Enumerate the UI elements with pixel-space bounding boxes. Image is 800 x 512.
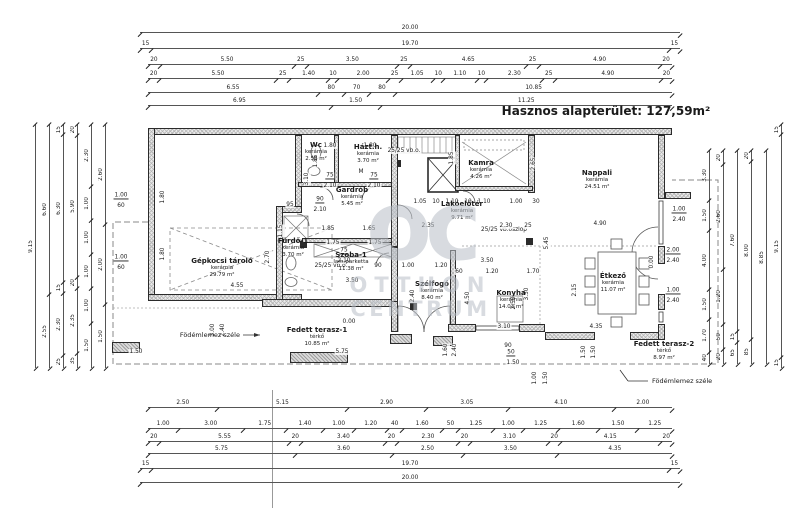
- dim-segment: 9.15: [772, 135, 782, 357]
- room-label-furdo-1: Fürdő-1 kerámia 3.70 m²: [278, 237, 308, 259]
- dim-annotation: 2.00: [666, 247, 681, 254]
- dim-value: 25: [526, 56, 539, 64]
- dim-value: 6.60: [42, 203, 48, 216]
- dim-segment: 25: [277, 70, 289, 79]
- dim-annotation: 60: [454, 269, 463, 275]
- dim-value: 1.60: [402, 420, 443, 428]
- dim-annotation: 1.50: [506, 360, 521, 366]
- dim-value: 2.35: [70, 314, 76, 327]
- dim-value: 4.35: [558, 445, 672, 453]
- dim-segment: 1.50: [331, 97, 381, 106]
- dim-segment: 80: [369, 84, 396, 93]
- dim-segment: 1.50: [700, 290, 710, 320]
- dim-value: 25: [277, 70, 289, 78]
- dim-value: 4.15: [560, 433, 660, 441]
- dim-value: 40: [702, 354, 708, 361]
- wall-segment: [455, 186, 533, 191]
- dim-annotation: 1.75: [326, 240, 341, 246]
- dim-segment: 1.60: [558, 420, 599, 429]
- wall-segment: [658, 294, 665, 310]
- dim-value: 6.95: [148, 97, 331, 105]
- dim-value: 20: [716, 154, 722, 161]
- dim-value: 20.00: [140, 24, 680, 32]
- dim-segment: 2.30: [486, 70, 543, 79]
- dim-value: 20: [661, 70, 672, 78]
- dim-segment: 40: [388, 420, 402, 429]
- dim-segment: 15: [772, 357, 782, 368]
- dim-annotation: 50: [506, 349, 515, 356]
- dim-value: 1.25: [459, 420, 494, 428]
- dim-segment: 20: [289, 433, 301, 442]
- room-label-lakoeloter: Lakóelőtér kerámia 9.71 m²: [441, 200, 483, 222]
- dim-value: 20.00: [140, 474, 680, 482]
- dim-segment: 20: [660, 56, 672, 65]
- dim-segment: 1.00: [493, 420, 523, 429]
- dim-value: 20: [660, 433, 672, 441]
- dim-annotation: 60: [116, 203, 125, 209]
- dim-value: 15: [669, 460, 680, 468]
- dim-chain-vertical: 202.601.205020: [714, 150, 724, 364]
- dim-segment: 1.00: [324, 420, 354, 429]
- dim-annotation: 4.50: [464, 292, 472, 305]
- dim-value: 20: [148, 70, 159, 78]
- dim-segment: 1.25: [459, 420, 494, 429]
- dim-chain-vertical: 205.90202.3535: [68, 124, 78, 368]
- dim-value: 1.60: [558, 420, 599, 428]
- dim-value: 4.00: [702, 254, 708, 267]
- dim-value: 9.15: [28, 240, 34, 253]
- dim-segment: 2.00: [338, 70, 389, 79]
- dim-segment: 15: [669, 460, 680, 469]
- dim-value: 1.20: [354, 420, 388, 428]
- dim-segment: 50: [442, 420, 458, 429]
- dim-value: 3.10: [470, 433, 548, 441]
- dim-value: 3.30: [702, 169, 708, 182]
- dim-annotation: 1.05: [413, 199, 428, 205]
- dim-value: 25: [397, 56, 410, 64]
- dim-annotation: 75: [369, 172, 378, 179]
- slab-edge-label-left: Födémlemez széle: [128, 331, 240, 339]
- wall-segment: [519, 324, 545, 332]
- dim-annotation: 1.85: [448, 152, 456, 165]
- dim-segment: 3.10: [470, 433, 548, 442]
- dim-annotation: 1.20: [434, 263, 449, 269]
- dim-segment: 25: [294, 56, 307, 65]
- dim-value: 3.40: [301, 433, 386, 441]
- wall-segment: [148, 128, 672, 135]
- wall-segment: [391, 247, 398, 307]
- dim-annotation: 3.50: [345, 278, 360, 284]
- dim-value: 35: [70, 357, 76, 364]
- wall-segment: [658, 324, 665, 340]
- dim-value: 25: [543, 70, 555, 78]
- dim-annotation: 0.00: [648, 256, 656, 269]
- dim-annotation: 1.50: [542, 372, 550, 385]
- floor-plan-sheet: Gépkocsi tároló kerámia 29.79 m² Wc kerá…: [0, 0, 800, 512]
- dim-segment: 5.90: [68, 136, 78, 277]
- dim-annotation: 3.10: [497, 324, 512, 330]
- dim-value: 1.50: [702, 298, 708, 311]
- dim-value: 10.85: [395, 84, 672, 92]
- dim-segment: 5.75: [148, 445, 295, 454]
- dim-annotation: 1.00: [401, 263, 416, 269]
- dim-segment: 1.50: [82, 323, 92, 368]
- wall-segment: [450, 250, 456, 332]
- dim-value: 3.50: [463, 445, 558, 453]
- dim-value: 25: [294, 56, 307, 64]
- dim-segment: 20: [548, 433, 560, 442]
- dim-value: 15: [774, 359, 780, 366]
- dim-segment: 1.25: [637, 420, 672, 429]
- wall-segment: [148, 128, 155, 301]
- dim-annotation: 1.15: [277, 225, 285, 238]
- dim-value: 1.50: [599, 420, 638, 428]
- wall-segment: [448, 324, 476, 332]
- dim-value: 85: [744, 348, 750, 355]
- room-label-nappali: Nappali kerámia 24.51 m²: [582, 169, 612, 191]
- dim-segment: 6.55: [148, 84, 318, 93]
- dim-chain-vertical: 208.0085: [742, 150, 752, 364]
- dim-annotation: 2.40: [666, 258, 681, 264]
- dim-annotation: 2.70: [264, 251, 272, 264]
- dim-value: 1.00: [84, 299, 90, 312]
- dim-segment: 10: [477, 70, 486, 79]
- dim-value: 2.00: [338, 70, 389, 78]
- dim-value: 2.55: [42, 325, 48, 338]
- dim-segment: 50: [714, 325, 724, 350]
- dim-value: 10: [477, 70, 486, 78]
- dim-value: 5.15: [218, 399, 348, 407]
- wall-segment: [658, 135, 665, 199]
- dim-segment: 20: [661, 70, 672, 79]
- dim-value: 3.60: [295, 445, 392, 453]
- dim-value: 5.55: [160, 433, 290, 441]
- dim-segment: 20: [148, 433, 160, 442]
- dim-value: 80: [369, 84, 396, 92]
- dim-value: 7.60: [730, 234, 736, 247]
- room-label-gepkocsi-tarolo: Gépkocsi tároló kerámia 29.79 m²: [191, 257, 252, 279]
- dim-value: 1.40: [286, 420, 323, 428]
- dim-annotation: 1.00: [114, 254, 129, 261]
- dim-value: 1.50: [331, 97, 381, 105]
- dim-segment: 2.55: [40, 294, 50, 368]
- dim-segment: 3.40: [301, 433, 386, 442]
- room-label-gardrob: Gardrób kerámia 5.45 m²: [336, 186, 368, 208]
- dim-segment: 2.30: [82, 124, 92, 186]
- wall-segment: [665, 192, 691, 199]
- dim-value: 4.65: [410, 56, 526, 64]
- dim-value: 6.55: [148, 84, 318, 92]
- dim-annotation: 1.50: [590, 346, 598, 359]
- dim-segment: 1.20: [354, 420, 388, 429]
- dim-chain-horizontal: 5.753.602.503.504.35: [148, 445, 672, 454]
- dim-annotation: 1.00: [531, 372, 539, 385]
- dim-annotation: 2.40: [451, 344, 459, 357]
- dim-segment: 1.50: [96, 305, 106, 368]
- dim-value: 1.00: [148, 420, 178, 428]
- dim-annotation: 90: [373, 263, 382, 269]
- dim-segment: 15: [140, 460, 151, 469]
- dim-annotation: 4.35: [589, 324, 604, 330]
- dim-value: 10: [328, 70, 337, 78]
- dim-annotation: 5.45: [543, 237, 551, 250]
- dim-annotation: 2.40: [666, 298, 681, 304]
- dim-chain-horizontal: 205.50251.40102.00251.05101.10102.30254.…: [148, 70, 672, 79]
- dim-segment: 20: [386, 433, 398, 442]
- dim-annotation: 90: [315, 196, 324, 203]
- dim-value: 4.90: [539, 56, 660, 64]
- dim-value: 1.00: [84, 265, 90, 278]
- dim-segment: 1.60: [402, 420, 443, 429]
- dim-value: 5.50: [160, 56, 294, 64]
- dim-segment: 6.30: [54, 135, 64, 283]
- dim-value: 65: [730, 349, 736, 356]
- dim-value: 25: [56, 358, 62, 365]
- dim-segment: 5.50: [160, 56, 294, 65]
- dim-value: 5.90: [70, 200, 76, 213]
- dim-value: 20: [148, 433, 160, 441]
- dim-segment: 4.35: [558, 445, 672, 454]
- dim-value: 6.30: [56, 202, 62, 215]
- dim-value: 20: [148, 56, 160, 64]
- dim-value: 2.60: [716, 210, 722, 223]
- dim-segment: 1.00: [82, 186, 92, 220]
- dim-segment: 4.15: [560, 433, 660, 442]
- dim-segment: 8.85: [757, 150, 767, 364]
- dim-value: 1.25: [523, 420, 558, 428]
- dim-value: 20: [386, 433, 398, 441]
- dim-annotation: 2.10: [313, 207, 328, 213]
- dim-annotation: 1.00: [666, 287, 681, 294]
- dim-value: 1.50: [98, 330, 104, 343]
- dim-segment: 5.50: [159, 70, 276, 79]
- room-label-hazth: Házt.h. kerámia 3.70 m²: [354, 143, 382, 165]
- dim-annotation: 0.00: [342, 319, 357, 325]
- dim-value: 20: [70, 126, 76, 133]
- dim-segment: 3.00: [178, 420, 243, 429]
- dim-value: 8.00: [744, 244, 750, 257]
- dim-value: 20: [459, 433, 471, 441]
- dim-segment: 10: [434, 70, 443, 79]
- dim-segment: 1.40: [289, 70, 329, 79]
- dim-annotation: 2.65: [530, 158, 538, 171]
- dim-segment: 3.50: [307, 56, 397, 65]
- dim-segment: 85: [742, 339, 752, 364]
- dim-segment: 25: [543, 70, 555, 79]
- dim-value: 15: [56, 126, 62, 133]
- dim-chain-vertical: 8.85: [757, 150, 767, 364]
- dim-segment: 2.60: [714, 164, 724, 269]
- dim-value: 2.50: [392, 445, 463, 453]
- dim-segment: 1.75: [243, 420, 286, 429]
- dim-annotation: 1.20: [485, 269, 500, 275]
- dim-value: 20: [289, 433, 301, 441]
- dim-value: 9.15: [774, 240, 780, 253]
- wall-segment: [391, 301, 398, 332]
- dim-segment: 4.00: [700, 231, 710, 290]
- dim-chain-vertical: 9.15: [26, 124, 36, 368]
- dim-chain-horizontal: 6.5580708010.85: [148, 84, 672, 93]
- dim-segment: 2.00: [96, 224, 106, 304]
- dim-value: 5.75: [148, 445, 295, 453]
- dim-annotation: 2.40: [672, 217, 687, 223]
- dim-annotation: 5.75: [335, 349, 350, 355]
- dim-value: 1.00: [493, 420, 523, 428]
- dim-segment: 1.05: [401, 70, 434, 79]
- dim-value: 15: [56, 284, 62, 291]
- dim-segment: 25: [526, 56, 539, 65]
- dim-value: 2.00: [614, 399, 672, 407]
- dim-segment: 8.00: [742, 162, 752, 340]
- dim-annotation: 2.10: [367, 183, 382, 189]
- room-label-etkezo: Étkező kerámia 11.07 m²: [600, 272, 626, 294]
- room-label-kamra: Kamra kerámia 4.26 m²: [468, 159, 494, 181]
- dim-segment: 1.50: [700, 201, 710, 231]
- dim-chain-horizontal: 1519.7015: [140, 460, 680, 469]
- dim-value: 2.30: [486, 70, 543, 78]
- dim-value: 1.50: [702, 209, 708, 222]
- dim-value: 2.90: [347, 399, 426, 407]
- dim-annotation: 3.10: [303, 173, 311, 186]
- dim-value: 40: [388, 420, 402, 428]
- dim-segment: 5.55: [160, 433, 290, 442]
- wall-segment: [295, 135, 302, 212]
- dim-segment: 3.05: [426, 399, 508, 408]
- dim-chain-horizontal: 1.003.001.751.401.001.20401.60501.251.00…: [148, 420, 672, 429]
- dim-segment: 15: [54, 282, 64, 293]
- dim-segment: 1.00: [82, 289, 92, 323]
- dim-value: 1.00: [84, 197, 90, 210]
- dim-segment: 1.25: [523, 420, 558, 429]
- dim-segment: 80: [318, 84, 345, 93]
- dim-segment: 5.15: [218, 399, 348, 408]
- dim-segment: 25: [397, 56, 410, 65]
- dim-value: 3.05: [426, 399, 508, 407]
- dim-annotation: 1.85: [321, 226, 336, 232]
- dim-value: 15: [730, 333, 736, 340]
- dim-segment: 1.00: [148, 420, 178, 429]
- dim-segment: 6.95: [148, 97, 331, 106]
- dim-segment: 15: [669, 40, 680, 49]
- dim-annotation: 1.65: [362, 226, 377, 232]
- dim-chain-horizontal: 20.00: [140, 474, 680, 483]
- dim-value: 20: [660, 56, 672, 64]
- wall-segment: [262, 299, 398, 307]
- dim-annotation: 1.50: [129, 349, 144, 355]
- dim-value: 2.60: [98, 168, 104, 181]
- dim-chain-vertical: 3.301.504.001.501.7040: [700, 150, 710, 364]
- room-label-fedett-terasz-2: Fedett terasz-2 térkő 8.97 m²: [634, 340, 694, 362]
- dim-chain-horizontal: 2.505.152.903.054.102.00: [148, 399, 672, 408]
- dim-segment: 20: [714, 350, 724, 364]
- dim-annotation: 60: [116, 265, 125, 271]
- dim-value: 2.00: [98, 258, 104, 271]
- dim-chain-horizontal: 20.00: [140, 24, 680, 33]
- dim-segment: 20: [459, 433, 471, 442]
- dim-chain-vertical: 7.601565: [728, 150, 738, 364]
- dim-segment: 20: [148, 56, 160, 65]
- slab-edge-label-right: Födémlemez széle: [652, 377, 712, 385]
- dim-value: 2.30: [84, 149, 90, 162]
- dim-value: 20: [548, 433, 560, 441]
- dim-value: 3.00: [178, 420, 243, 428]
- dim-value: 1.05: [401, 70, 434, 78]
- dim-annotation: 1.00: [672, 206, 687, 213]
- dim-annotation: 2.15: [571, 284, 579, 297]
- dim-value: 2.30: [397, 433, 458, 441]
- dim-segment: 1.20: [714, 269, 724, 324]
- dim-annotation: 1.00: [509, 199, 524, 205]
- dim-value: 1.25: [637, 420, 672, 428]
- dim-value: 80: [318, 84, 345, 92]
- dim-value: 4.10: [508, 399, 614, 407]
- dim-segment: 3.50: [463, 445, 558, 454]
- dim-chain-vertical: 6.602.55: [40, 124, 50, 368]
- dim-segment: 10.85: [395, 84, 672, 93]
- dim-segment: 19.70: [151, 460, 669, 469]
- dim-annotation: 1.60: [442, 344, 450, 357]
- dim-segment: 35: [68, 353, 78, 368]
- dim-segment: 20.00: [140, 474, 680, 483]
- dim-segment: 65: [728, 342, 738, 364]
- wall-segment: [545, 332, 595, 340]
- dim-annotation: 3.50: [480, 258, 495, 264]
- room-label-konyha: Konyha kerámia 14.03 m²: [496, 289, 525, 311]
- dim-value: 3.50: [307, 56, 397, 64]
- dim-segment: 2.90: [347, 399, 426, 408]
- dim-segment: 20: [660, 433, 672, 442]
- terrace-pier: [390, 334, 412, 344]
- dim-segment: 4.10: [508, 399, 614, 408]
- dim-annotation: 1.80: [159, 248, 167, 261]
- dim-segment: 20.00: [140, 24, 680, 33]
- dim-segment: 9.15: [26, 124, 36, 368]
- dim-segment: 3.60: [295, 445, 392, 454]
- dim-value: 4.90: [555, 70, 661, 78]
- dim-annotation: 10: [431, 199, 440, 205]
- dim-value: 1.20: [716, 290, 722, 303]
- dim-segment: 1.40: [286, 420, 323, 429]
- dim-segment: 3.30: [700, 150, 710, 201]
- dim-value: 1.00: [324, 420, 354, 428]
- dim-segment: 20: [714, 150, 724, 164]
- dim-annotation: 1.50: [580, 346, 588, 359]
- dim-annotation: 4.90: [593, 221, 608, 227]
- dim-value: 1.00: [84, 231, 90, 244]
- dim-value: 25: [389, 70, 401, 78]
- dim-value: 5.50: [159, 70, 276, 78]
- dim-annotation: 25: [523, 223, 532, 229]
- dim-value: 2.50: [148, 399, 218, 407]
- dim-segment: 19.70: [151, 40, 669, 49]
- dim-annotation: 30: [531, 199, 540, 205]
- dim-segment: 4.90: [539, 56, 660, 65]
- dim-chain-vertical: 159.1515: [772, 124, 782, 368]
- page-title: Hasznos alapterület: 127,59m²: [478, 104, 734, 118]
- dim-segment: 2.00: [614, 399, 672, 408]
- dim-segment: 2.60: [96, 124, 106, 224]
- dim-segment: 7.60: [728, 150, 738, 331]
- dim-segment: 4.65: [410, 56, 526, 65]
- room-label-fedett-terasz-1: Fedett terasz-1 térkő 10.85 m²: [287, 326, 347, 348]
- dim-chain-vertical: 2.301.001.001.001.001.50: [82, 124, 92, 368]
- dim-value: 1.70: [702, 329, 708, 342]
- dim-chain-vertical: 156.30152.3025: [54, 124, 64, 368]
- dim-annotation: 2.35: [421, 223, 436, 229]
- dim-segment: 4.90: [555, 70, 661, 79]
- dim-segment: 70: [345, 84, 369, 93]
- dim-value: 1.50: [84, 339, 90, 352]
